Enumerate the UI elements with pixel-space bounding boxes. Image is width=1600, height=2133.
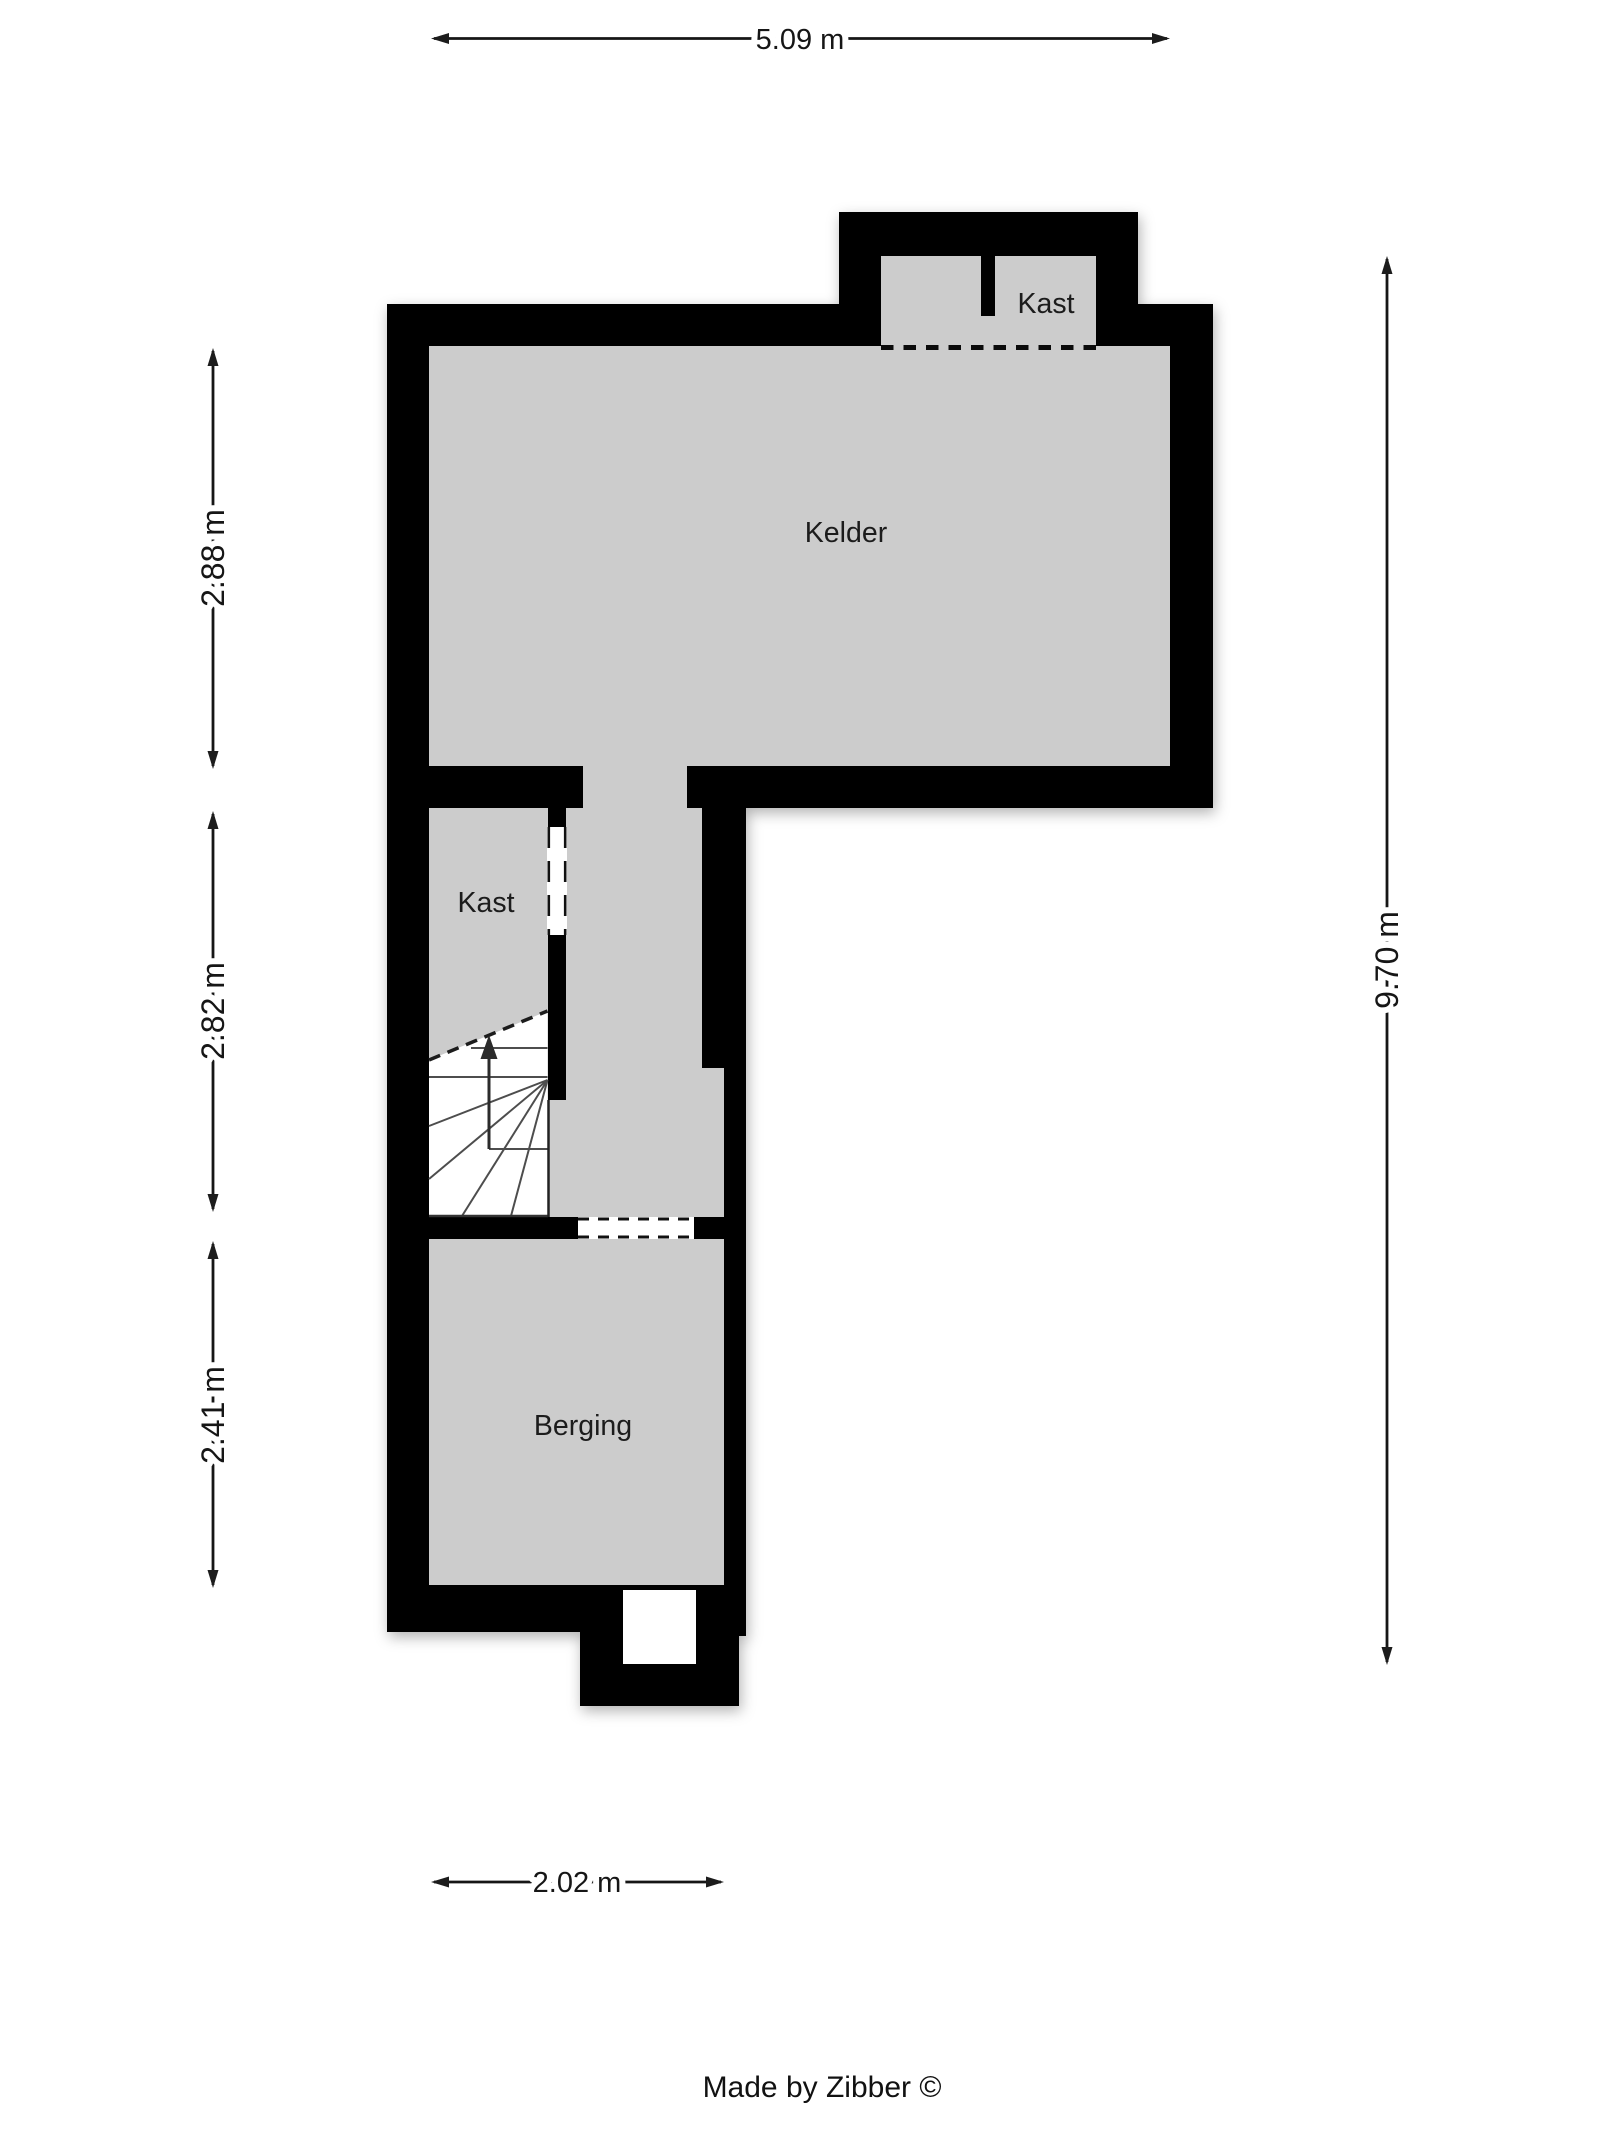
svg-text:Kast: Kast <box>1017 288 1074 320</box>
svg-text:5.09 m: 5.09 m <box>756 24 845 56</box>
svg-text:Made by Zibber ©: Made by Zibber © <box>703 2071 942 2104</box>
svg-text:2.41 m: 2.41 m <box>195 1366 231 1464</box>
svg-text:2.88 m: 2.88 m <box>195 509 231 607</box>
svg-text:2.02 m: 2.02 m <box>533 1867 622 1899</box>
svg-text:9.70 m: 9.70 m <box>1369 911 1405 1009</box>
svg-text:Kelder: Kelder <box>805 517 888 549</box>
svg-text:Kast: Kast <box>457 887 514 919</box>
svg-text:Berging: Berging <box>534 1410 632 1442</box>
svg-text:2.82 m: 2.82 m <box>195 962 231 1060</box>
